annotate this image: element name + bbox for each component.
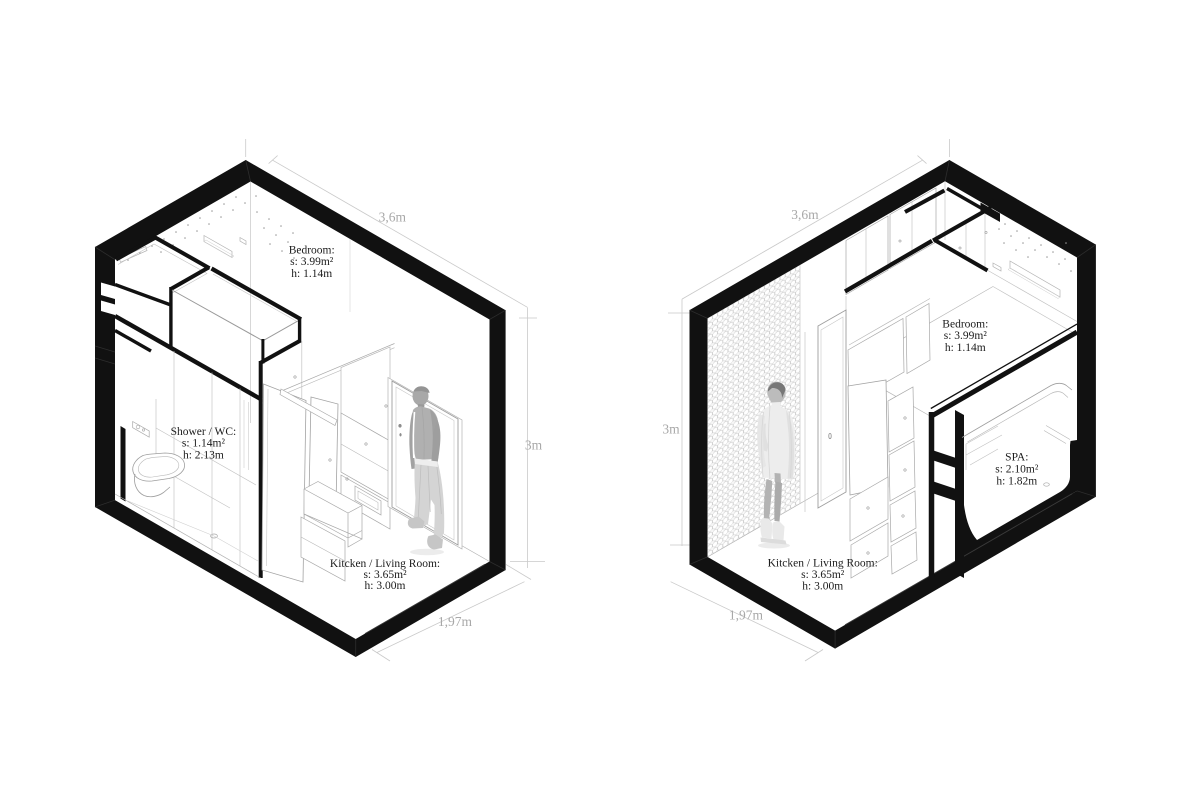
svg-text:Bedroom:: Bedroom:	[942, 318, 988, 330]
svg-text:h: 3.00m: h: 3.00m	[802, 581, 843, 593]
svg-text:s: 3.99m²: s: 3.99m²	[944, 330, 988, 342]
svg-text:s: 2.10m²: s: 2.10m²	[995, 464, 1039, 476]
svg-text:h: 1.82m: h: 1.82m	[996, 476, 1037, 488]
svg-text:3,6m: 3,6m	[791, 207, 819, 222]
svg-text:s: 1.14m²: s: 1.14m²	[182, 438, 226, 450]
svg-text:Shower / WC:: Shower / WC:	[171, 426, 237, 438]
svg-text:h: 2.13m: h: 2.13m	[183, 449, 224, 461]
svg-text:3m: 3m	[525, 438, 543, 453]
svg-text:3,6m: 3,6m	[379, 209, 407, 224]
svg-text:3m: 3m	[662, 422, 680, 437]
svg-text:h: 1.14m: h: 1.14m	[945, 342, 986, 354]
svg-text:Kitcken / Living Room:: Kitcken / Living Room:	[768, 558, 878, 570]
svg-text:s: 3.65m²: s: 3.65m²	[801, 569, 845, 581]
svg-text:Bedroom:: Bedroom:	[289, 245, 335, 257]
svg-text:1,97m: 1,97m	[438, 614, 473, 629]
svg-text:1,97m: 1,97m	[729, 608, 764, 623]
svg-text:h: 1.14m: h: 1.14m	[291, 268, 332, 280]
svg-text:h: 3.00m: h: 3.00m	[365, 580, 406, 592]
svg-text:s: 3.99m²: s: 3.99m²	[290, 256, 334, 268]
svg-text:SPA:: SPA:	[1005, 452, 1028, 464]
